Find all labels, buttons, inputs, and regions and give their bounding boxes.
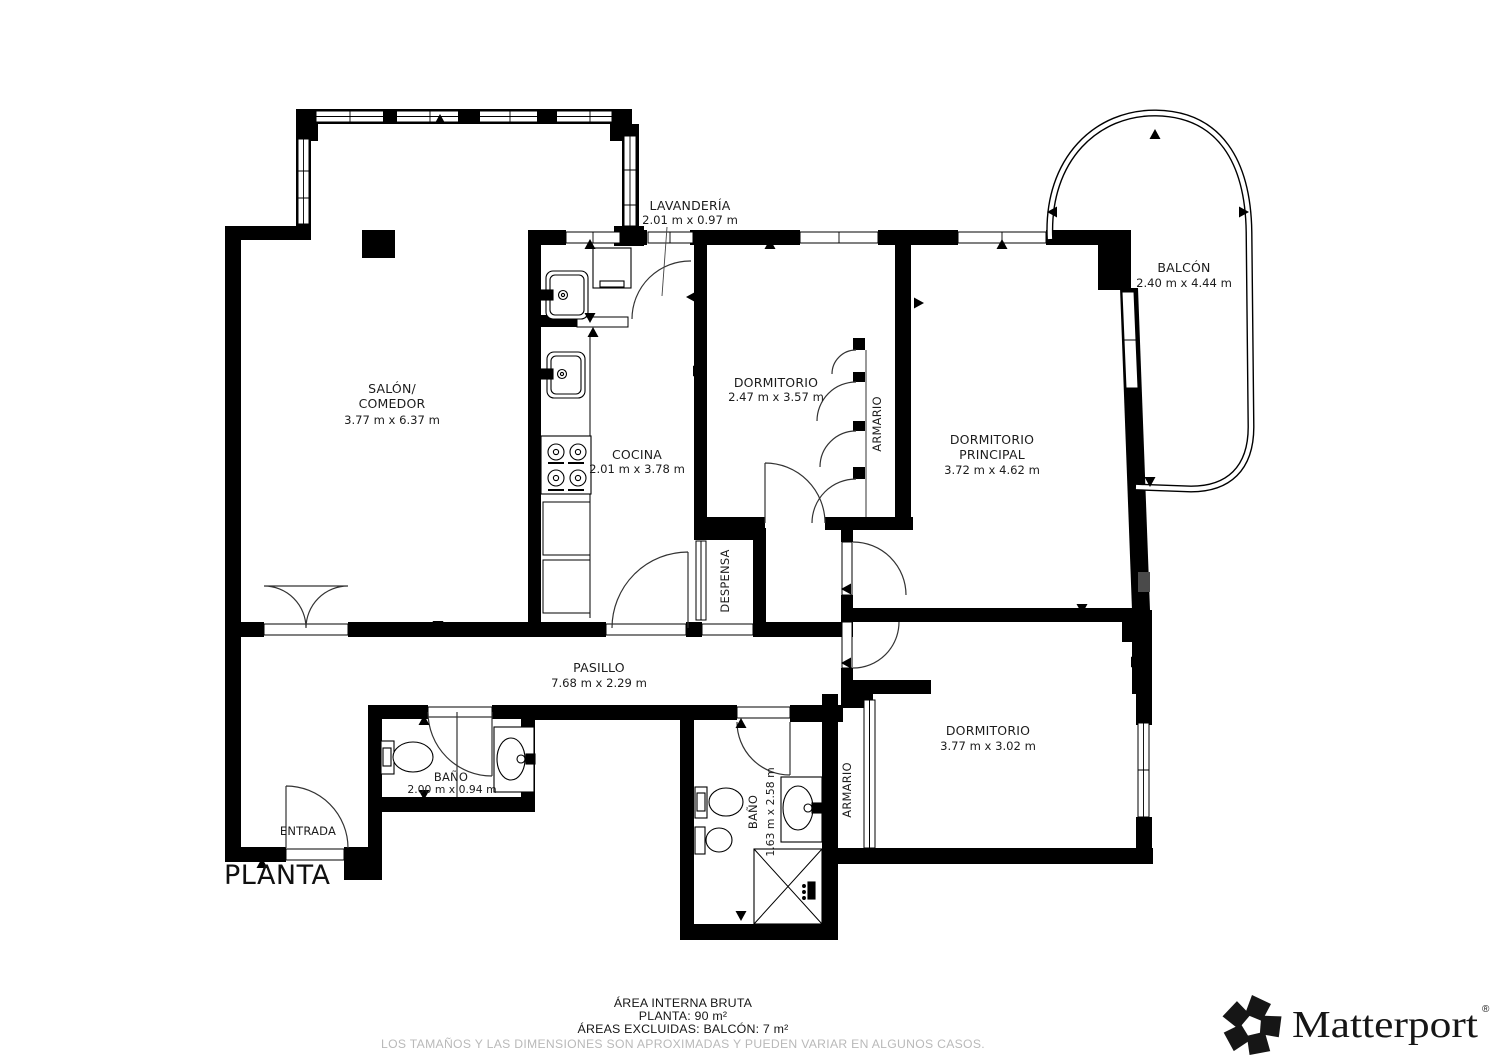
room-dims-dormitorio: 2.47 m x 3.57 m <box>728 390 824 404</box>
door-dormitorio <box>765 463 825 523</box>
toilet-icon <box>695 787 743 818</box>
footer-area-planta: PLANTA: 90 m² <box>639 1009 727 1023</box>
room-label-dormitorio-principal: DORMITORIO <box>950 432 1034 447</box>
room-dims-cocina: 2.01 m x 3.78 m <box>589 462 685 476</box>
stove-icon <box>541 436 591 494</box>
room-dims-lavanderia: 2.01 m x 0.97 m <box>642 213 738 227</box>
room-dims-pasillo: 7.68 m x 2.29 m <box>551 676 647 690</box>
floor-plan-page: SALÓN/ COMEDOR 3.77 m x 6.37 m LAVANDERÍ… <box>0 0 1500 1057</box>
door-vestibulo <box>853 622 899 668</box>
room-label-armario-2: ARMARIO <box>840 762 854 817</box>
matterport-logo: Matterport ® <box>1218 995 1490 1057</box>
room-label-entrada: ENTRADA <box>280 824 336 838</box>
room-label-lavanderia: LAVANDERÍA <box>649 198 730 213</box>
room-label-pasillo: PASILLO <box>573 660 625 675</box>
plan-title: PLANTA <box>224 860 331 891</box>
room-label-dormitorio-principal: PRINCIPAL <box>959 447 1025 462</box>
room-dims-dormitorio-principal: 3.72 m x 4.62 m <box>944 463 1040 477</box>
balcony-railing <box>1050 113 1251 489</box>
room-label-cocina: COCINA <box>612 447 662 462</box>
bidet-icon <box>695 827 732 854</box>
footer-area-excluded: ÁREAS EXCLUIDAS: BALCÓN: 7 m² <box>578 1021 789 1036</box>
room-label-bano-pasillo: BAÑO <box>434 769 468 784</box>
floor-plan-drawing: SALÓN/ COMEDOR 3.77 m x 6.37 m LAVANDERÍ… <box>0 0 1500 1057</box>
room-dims-salon: 3.77 m x 6.37 m <box>344 413 440 427</box>
room-dims-bano-pasillo: 2.00 m x 0.94 m <box>407 783 496 796</box>
footer-area-summary: ÁREA INTERNA BRUTA PLANTA: 90 m² ÁREAS E… <box>381 995 985 1051</box>
room-label-balcon: BALCÓN <box>1157 260 1210 275</box>
bath-sink-icon <box>494 727 535 792</box>
closet-bifold-doors <box>812 350 856 523</box>
door-bano-grande <box>737 722 790 775</box>
room-label-bano-grande: BAÑO <box>745 795 760 829</box>
bath-sink-icon <box>781 777 822 842</box>
room-label-despensa: DESPENSA <box>718 549 732 612</box>
matterport-pinwheel-icon <box>1218 995 1287 1057</box>
door-bano-pasillo <box>428 712 492 776</box>
door-lavanderia <box>632 261 691 319</box>
room-label-armario: ARMARIO <box>870 396 884 451</box>
door-entrada <box>286 786 348 848</box>
structural-pillar <box>362 230 395 258</box>
footer-area-title: ÁREA INTERNA BRUTA <box>614 995 753 1010</box>
footer-disclaimer: LOS TAMAÑOS Y LAS DIMENSIONES SON APROXI… <box>381 1037 985 1051</box>
room-dims-dormitorio-2: 3.77 m x 3.02 m <box>940 739 1036 753</box>
brand-wordmark: Matterport <box>1292 1004 1478 1046</box>
registered-trademark-icon: ® <box>1482 1004 1490 1015</box>
wall-shade-block <box>1138 572 1150 592</box>
room-dims-balcon: 2.40 m x 4.44 m <box>1136 276 1232 290</box>
french-door-salon <box>264 586 348 628</box>
room-label-salon: COMEDOR <box>359 396 426 411</box>
door-dormitorio-principal <box>853 542 906 595</box>
kitchen-appliance <box>543 560 590 613</box>
room-label-dormitorio-2: DORMITORIO <box>946 723 1030 738</box>
kitchen-appliance <box>543 502 590 555</box>
room-dims-bano-grande: 1.63 m x 2.58 m <box>764 767 777 856</box>
toilet-icon <box>381 741 433 774</box>
room-label-salon: SALÓN/ <box>368 381 416 396</box>
door-cocina <box>612 552 688 628</box>
room-label-dormitorio: DORMITORIO <box>734 375 818 390</box>
shower-icon <box>754 849 822 924</box>
